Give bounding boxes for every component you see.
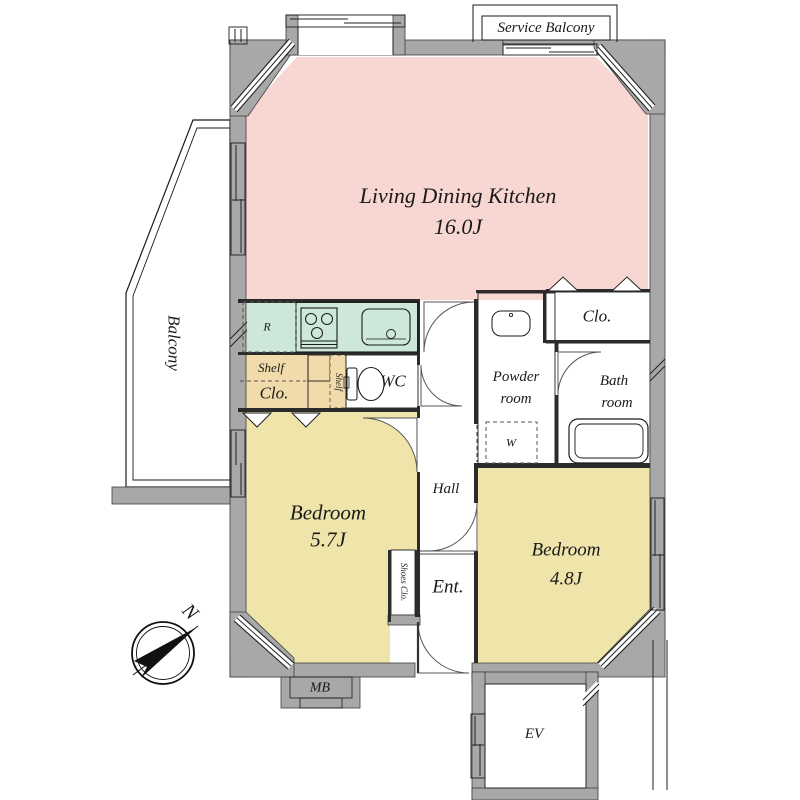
- ldk-area: [246, 57, 648, 300]
- bedroom1-closet-label: Clo.: [260, 385, 289, 404]
- bedroom1-label: Bedroom: [290, 501, 366, 524]
- shelf-column-label: Shelf: [333, 373, 343, 391]
- ldk-label: Living Dining Kitchen: [360, 184, 557, 208]
- bedroom2-area: [478, 468, 650, 663]
- powder-room-label-line1: Powder: [493, 369, 540, 386]
- ldk-closet-label: Clo.: [583, 308, 612, 327]
- floor-plan: Living Dining Kitchen 16.0J Service Balc…: [0, 0, 800, 800]
- shoes-closet-label: Shoes Clo.: [398, 563, 408, 602]
- bedroom2-label: Bedroom: [532, 541, 601, 562]
- washer-space-label: W: [506, 436, 516, 449]
- service-balcony-label: Service Balcony: [497, 20, 594, 37]
- bedroom2-size-label: 4.8J: [550, 570, 582, 591]
- powder-room-label-line2: room: [500, 391, 531, 408]
- floor-plan-drawing: [0, 0, 800, 800]
- bath-door-arc: [558, 352, 601, 395]
- entrance-area: [420, 553, 474, 663]
- bathtub-icon: [569, 419, 648, 463]
- bay-window: [286, 15, 405, 27]
- bedroom1-size-label: 5.7J: [310, 528, 346, 551]
- washbasin-icon: [492, 311, 530, 336]
- wc-label: WC: [380, 373, 406, 392]
- bath-room-label-line1: Bath: [600, 373, 628, 390]
- toilet-icon: [344, 368, 384, 401]
- hall-area: [420, 300, 474, 553]
- compass-icon: [132, 622, 198, 684]
- balcony-label: Balcony: [164, 315, 183, 371]
- hall-label: Hall: [433, 481, 460, 498]
- refrigerator-space-label: R: [263, 320, 270, 333]
- room-fills: [238, 57, 650, 663]
- service-balcony-window: [503, 44, 597, 55]
- ldk-size-label: 16.0J: [434, 215, 482, 239]
- balcony-outline: [126, 120, 230, 487]
- shelf-label: Shelf: [258, 361, 284, 375]
- elevator-label: EV: [525, 726, 543, 743]
- meter-box-label: MB: [310, 680, 330, 695]
- entrance-label: Ent.: [432, 578, 463, 599]
- bath-room-label-line2: room: [601, 395, 632, 412]
